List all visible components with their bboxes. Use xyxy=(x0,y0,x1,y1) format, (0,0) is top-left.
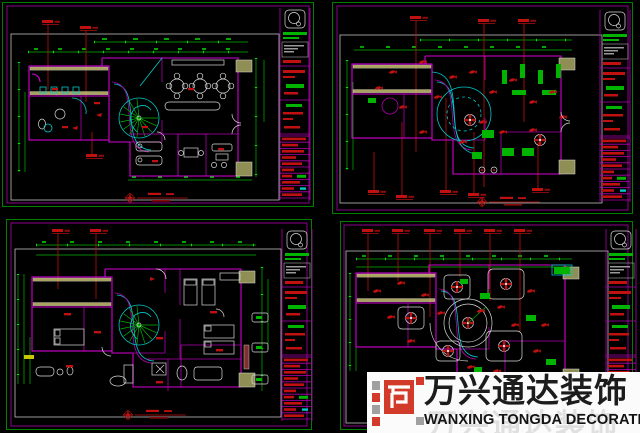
spiral-staircase xyxy=(119,98,159,138)
cad-drawing-sheet: 万兴通达装饰 万兴通达装饰 WANXING TONGDA DECORATION xyxy=(0,0,640,433)
logo-glyph xyxy=(384,380,414,414)
logo-main-square xyxy=(384,380,414,414)
spiral-staircase xyxy=(119,305,159,345)
walls xyxy=(32,269,255,387)
title-block xyxy=(600,10,630,202)
furniture xyxy=(32,58,241,176)
brand-logo-icon xyxy=(370,375,424,430)
downlight-symbols xyxy=(373,281,549,374)
logo-square-gray xyxy=(372,405,380,414)
brand-name-chinese: 万兴通达装饰 xyxy=(424,373,638,409)
logo-square-gray xyxy=(372,381,380,390)
plan-title-second-floor xyxy=(123,410,186,420)
title-block xyxy=(280,8,310,200)
title-block xyxy=(282,229,312,421)
logo-square-red xyxy=(372,417,380,426)
logo-square-red xyxy=(372,393,380,402)
panel-first-floor-plan xyxy=(3,3,314,207)
cad-canvas xyxy=(0,0,640,433)
dimension-lines xyxy=(18,242,268,391)
panel-second-floor-plan xyxy=(7,220,313,430)
plan-title-first-floor xyxy=(125,193,188,203)
red-leader-annotations xyxy=(52,229,108,299)
logo-square-red xyxy=(416,377,424,385)
red-leader-annotations xyxy=(368,16,550,200)
logo-square-gray xyxy=(416,417,424,425)
furniture xyxy=(24,269,268,391)
brand-text-block: 万兴通达装饰 WANXING TONGDA DECORATION xyxy=(424,372,638,433)
ceiling-features xyxy=(398,265,572,372)
brand-name-english: WANXING TONGDA DECORATION xyxy=(424,412,638,428)
ceiling-features xyxy=(368,64,561,173)
plan-title-first-floor-ceiling xyxy=(477,197,540,207)
watermark-logo: 万兴通达装饰 万兴通达装饰 WANXING TONGDA DECORATION xyxy=(367,372,640,433)
panel-first-floor-ceiling-plan xyxy=(333,3,633,214)
